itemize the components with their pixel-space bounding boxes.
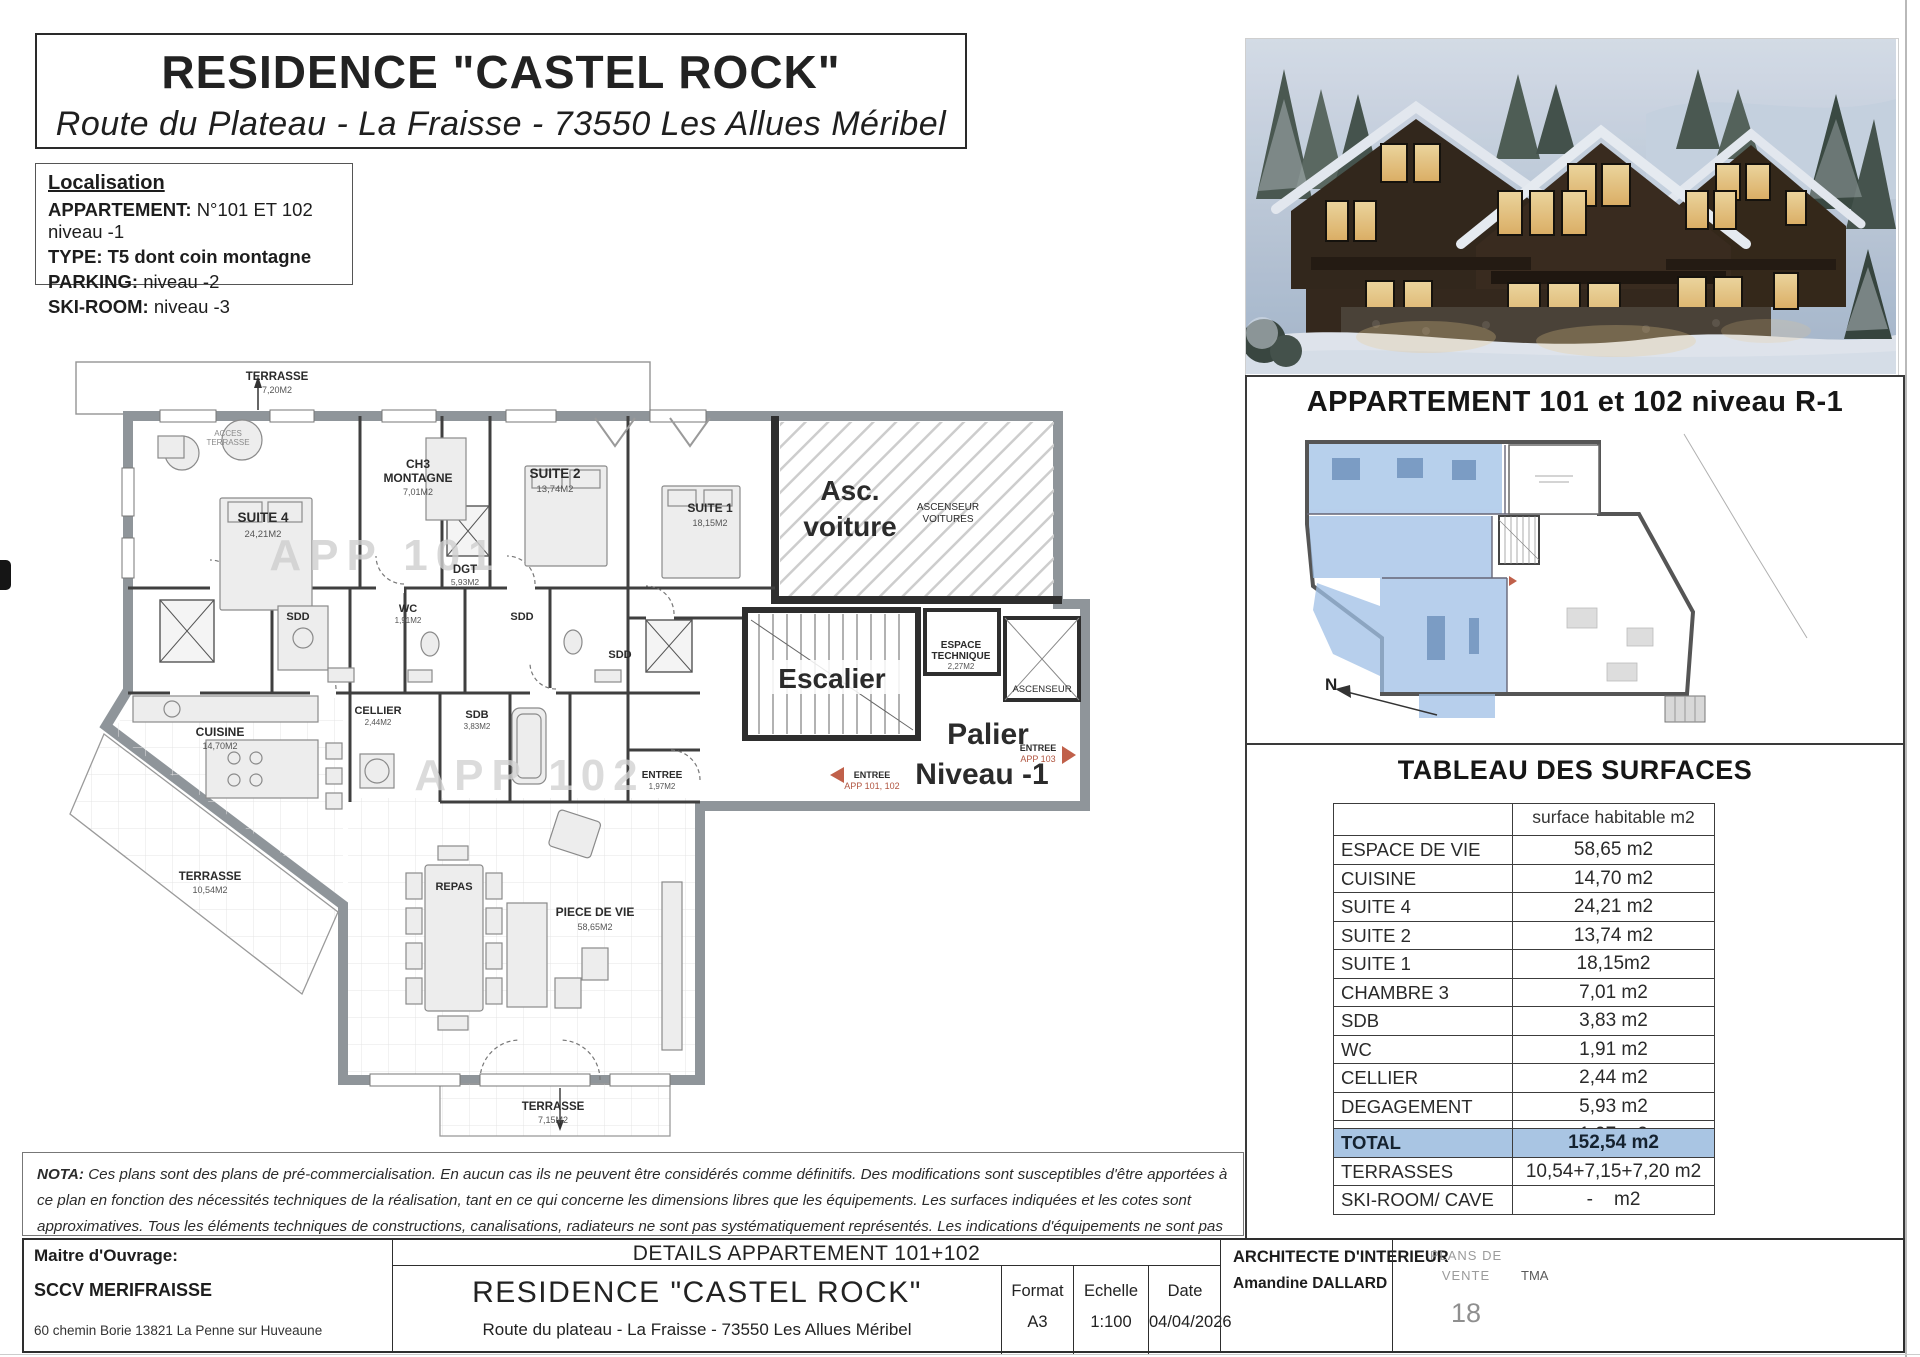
plans-de-label: PLANS DE <box>1421 1248 1511 1263</box>
table-row: SUITE 118,15m2 <box>1334 949 1714 978</box>
mini-garage <box>1509 445 1599 514</box>
label-cellier-area: 2,44M2 <box>365 718 392 727</box>
terrace-top-outline <box>76 362 650 414</box>
label-espace-2: TECHNIQUE <box>932 651 991 662</box>
label-terrasse-bottom-area: 7,15M2 <box>538 1115 568 1125</box>
label-dgt: DGT <box>453 564 477 576</box>
table-row: SKI-ROOM/ CAVE- m2 <box>1334 1185 1714 1214</box>
row-value: - m2 <box>1512 1186 1714 1214</box>
label-acces-1: ACCES <box>214 429 242 438</box>
row-value: 10,54+7,15+7,20 m2 <box>1512 1158 1714 1186</box>
surface-table-title: TABLEAU DES SURFACES <box>1398 755 1753 786</box>
label-terrasse-top-area: 7,20M2 <box>262 385 292 395</box>
table-row: CHAMBRE 37,01 m2 <box>1334 978 1714 1007</box>
total-row: TOTAL152,54 m2 <box>1334 1129 1714 1157</box>
table-row: SUITE 424,21 m2 <box>1334 892 1714 921</box>
echelle-cell: Echelle 1:100 <box>1073 1266 1148 1355</box>
table-row: WC1,91 m2 <box>1334 1035 1714 1064</box>
label-wc-area: 1,91M2 <box>395 616 422 625</box>
row-value: 24,21 m2 <box>1512 893 1714 921</box>
label-ch3-1: CH3 <box>406 457 430 471</box>
residence-cell: RESIDENCE "CASTEL ROCK" Route du plateau… <box>393 1266 1001 1355</box>
surface-table: surface habitable m2 ESPACE DE VIE58,65 … <box>1333 803 1715 1150</box>
label-sdd-a: SDD <box>286 611 309 623</box>
chalet-photo-svg <box>1246 39 1896 374</box>
nota-label: NOTA: <box>37 1166 84 1183</box>
row-label: SUITE 2 <box>1334 922 1512 950</box>
apartment-title-bar: APPARTEMENT 101 et 102 niveau R-1 <box>1245 375 1905 430</box>
label-cuisine: CUISINE <box>196 725 245 739</box>
echelle-label: Echelle <box>1074 1282 1148 1301</box>
tma-label: TMA <box>1521 1268 1548 1283</box>
title-block-owner: Maitre d'Ouvrage: SCCV MERIFRAISSE 60 ch… <box>24 1240 392 1351</box>
owner-label: Maitre d'Ouvrage: <box>34 1246 382 1266</box>
label-sdd-c: SDD <box>608 649 631 661</box>
floor-plan: APP 101 APP 102 TERRASSE 7,20M2 ACCES TE… <box>10 288 1240 1148</box>
scanned-plan-page: { "header": { "title": "RESIDENCE \"CAST… <box>0 0 1920 1357</box>
label-sdb: SDB <box>465 709 488 721</box>
label-terrasse-top: TERRASSE <box>246 371 309 383</box>
label-terrasse-left: TERRASSE <box>179 871 242 883</box>
format-label: Format <box>1002 1282 1073 1301</box>
page-subtitle: Route du Plateau - La Fraisse - 73550 Le… <box>37 105 965 144</box>
label-entree-area: 1,97M2 <box>649 782 676 791</box>
row-label: DEGAGEMENT <box>1334 1093 1512 1121</box>
label-asc-small-2: VOITURES <box>922 514 973 525</box>
residence-name: RESIDENCE "CASTEL ROCK" <box>393 1276 1001 1310</box>
row-label: TERRASSES <box>1334 1158 1512 1186</box>
date-value: 04/04/2026 <box>1149 1313 1221 1332</box>
label-dgt-area: 5,93M2 <box>451 577 480 587</box>
floor-plan-svg: APP 101 APP 102 TERRASSE 7,20M2 ACCES TE… <box>10 288 1240 1148</box>
row-value: 58,65 m2 <box>1512 836 1714 864</box>
label-asc-small-1: ASCENSEUR <box>917 502 979 513</box>
label-wc: WC <box>399 603 417 615</box>
surface-table-title-bar: TABLEAU DES SURFACES <box>1245 743 1905 797</box>
date-label: Date <box>1149 1282 1221 1301</box>
page-number: 18 <box>1421 1298 1511 1329</box>
label-acces-2: TERRASSE <box>206 438 249 447</box>
owner-name: SCCV MERIFRAISSE <box>34 1280 382 1301</box>
label-piece-de-vie: PIECE DE VIE <box>556 905 635 919</box>
architect-name: Amandine DALLARD <box>1233 1275 1392 1293</box>
row-label: WC <box>1334 1036 1512 1064</box>
label-sdb-area: 3,83M2 <box>464 722 491 731</box>
label-cellier: CELLIER <box>354 705 401 717</box>
architect-label: ARCHITECTE D'INTERIEUR <box>1233 1248 1392 1267</box>
label-ch3-area: 7,01M2 <box>403 487 433 497</box>
mini-plan-box: N <box>1245 428 1905 745</box>
row-label: SUITE 4 <box>1334 893 1512 921</box>
page-title: RESIDENCE "CASTEL ROCK" <box>37 45 965 99</box>
label-escalier: Escalier <box>778 663 886 694</box>
type-label: TYPE: <box>48 246 102 267</box>
row-value: 1,91 m2 <box>1512 1036 1714 1064</box>
label-suite2-area: 13,74M2 <box>537 484 574 495</box>
localisation-type: TYPE: T5 dont coin montagne <box>48 246 340 268</box>
north-label: N <box>1325 675 1337 694</box>
total-label: TOTAL <box>1334 1129 1512 1157</box>
title-block-architect: ARCHITECTE D'INTERIEUR Amandine DALLARD <box>1220 1240 1392 1351</box>
row-label: ESPACE DE VIE <box>1334 836 1512 864</box>
table-row: SDB3,83 m2 <box>1334 1006 1714 1035</box>
row-label: SUITE 1 <box>1334 950 1512 978</box>
row-label: CUISINE <box>1334 865 1512 893</box>
label-palier-2: Niveau -1 <box>915 758 1048 791</box>
row-label: SDB <box>1334 1007 1512 1035</box>
label-sdd-b: SDD <box>510 611 533 623</box>
date-cell: Date 04/04/2026 <box>1148 1266 1221 1355</box>
header-box: RESIDENCE "CASTEL ROCK" Route du Plateau… <box>35 33 967 149</box>
residence-address: Route du plateau - La Fraisse - 73550 Le… <box>393 1320 1001 1340</box>
row-label: SKI-ROOM/ CAVE <box>1334 1186 1512 1214</box>
format-value: A3 <box>1002 1313 1073 1332</box>
apartment-title: APPARTEMENT 101 et 102 niveau R-1 <box>1307 386 1844 419</box>
table-row: SUITE 213,74 m2 <box>1334 921 1714 950</box>
label-palier-1: Palier <box>947 718 1029 751</box>
label-espace-1: ESPACE <box>941 640 982 651</box>
label-piece-de-vie-area: 58,65M2 <box>577 922 612 932</box>
owner-address: 60 chemin Borie 13821 La Penne sur Huvea… <box>34 1323 382 1338</box>
label-voiture: voiture <box>803 511 896 542</box>
type-value: T5 dont coin montagne <box>108 246 312 267</box>
appartement-label: APPARTEMENT: <box>48 199 192 220</box>
row-value: 3,83 m2 <box>1512 1007 1714 1035</box>
row-value: 14,70 m2 <box>1512 865 1714 893</box>
echelle-value: 1:100 <box>1074 1313 1148 1332</box>
table-header-row: surface habitable m2 <box>1334 804 1714 835</box>
mini-plan-svg: N <box>1247 428 1903 741</box>
label-suite1-area: 18,15M2 <box>692 518 727 528</box>
row-value: 18,15m2 <box>1512 950 1714 978</box>
chalet-photo <box>1245 38 1899 377</box>
localisation-appartement: APPARTEMENT: N°101 ET 102 niveau -1 <box>48 199 340 243</box>
label-suite4: SUITE 4 <box>237 510 289 525</box>
label-repas: REPAS <box>435 881 472 893</box>
table-header-cell: surface habitable m2 <box>1512 804 1714 835</box>
surface-table-totals: TOTAL152,54 m2 TERRASSES10,54+7,15+7,20 … <box>1333 1128 1715 1215</box>
label-espace-area: 2,27M2 <box>948 662 975 671</box>
localisation-title: Localisation <box>48 172 340 195</box>
format-cell: Format A3 <box>1001 1266 1073 1355</box>
details-title: DETAILS APPARTEMENT 101+102 <box>393 1240 1220 1266</box>
label-entree-app101-1: ENTREE <box>854 770 891 780</box>
scan-artifact <box>0 560 11 590</box>
page-edge-bottom <box>0 1354 1920 1355</box>
label-suite4-area: 24,21M2 <box>245 529 282 540</box>
label-suite1: SUITE 1 <box>687 501 733 515</box>
page-edge-right <box>1905 0 1907 1357</box>
table-row: TERRASSES10,54+7,15+7,20 m2 <box>1334 1157 1714 1186</box>
row-value: 5,93 m2 <box>1512 1093 1714 1121</box>
table-row: DEGAGEMENT5,93 m2 <box>1334 1092 1714 1121</box>
title-block-plans: PLANS DE VENTE TMA 18 <box>1392 1240 1907 1351</box>
row-value: 13,74 m2 <box>1512 922 1714 950</box>
table-row: CELLIER2,44 m2 <box>1334 1063 1714 1092</box>
total-value: 152,54 m2 <box>1512 1129 1714 1157</box>
label-suite2: SUITE 2 <box>529 466 580 481</box>
title-block-center: DETAILS APPARTEMENT 101+102 RESIDENCE "C… <box>392 1240 1220 1351</box>
nota-box: NOTA: Ces plans sont des plans de pré-co… <box>22 1152 1244 1236</box>
vente-label: VENTE <box>1421 1268 1511 1283</box>
row-label: CHAMBRE 3 <box>1334 979 1512 1007</box>
row-value: 2,44 m2 <box>1512 1064 1714 1092</box>
label-ch3-2: MONTAGNE <box>383 471 452 485</box>
label-entree: ENTREE <box>642 770 683 781</box>
row-value: 7,01 m2 <box>1512 979 1714 1007</box>
table-row: CUISINE14,70 m2 <box>1334 864 1714 893</box>
label-entree-app101-2: APP 101, 102 <box>844 781 899 791</box>
title-block: Maitre d'Ouvrage: SCCV MERIFRAISSE 60 ch… <box>22 1238 1905 1353</box>
surface-table-area: surface habitable m2 ESPACE DE VIE58,65 … <box>1245 795 1905 1240</box>
north-arrow-icon <box>1335 685 1351 698</box>
row-label: CELLIER <box>1334 1064 1512 1092</box>
table-row: ESPACE DE VIE58,65 m2 <box>1334 835 1714 864</box>
localisation-box: Localisation APPARTEMENT: N°101 ET 102 n… <box>35 163 353 285</box>
label-terrasse-bottom: TERRASSE <box>522 1101 585 1113</box>
label-asc: Asc. <box>820 475 879 506</box>
watermark-app102: APP 102 <box>414 751 645 800</box>
label-ascenseur: ASCENSEUR <box>1012 684 1071 695</box>
label-cuisine-area: 14,70M2 <box>202 741 237 751</box>
label-terrasse-left-area: 10,54M2 <box>192 885 227 895</box>
